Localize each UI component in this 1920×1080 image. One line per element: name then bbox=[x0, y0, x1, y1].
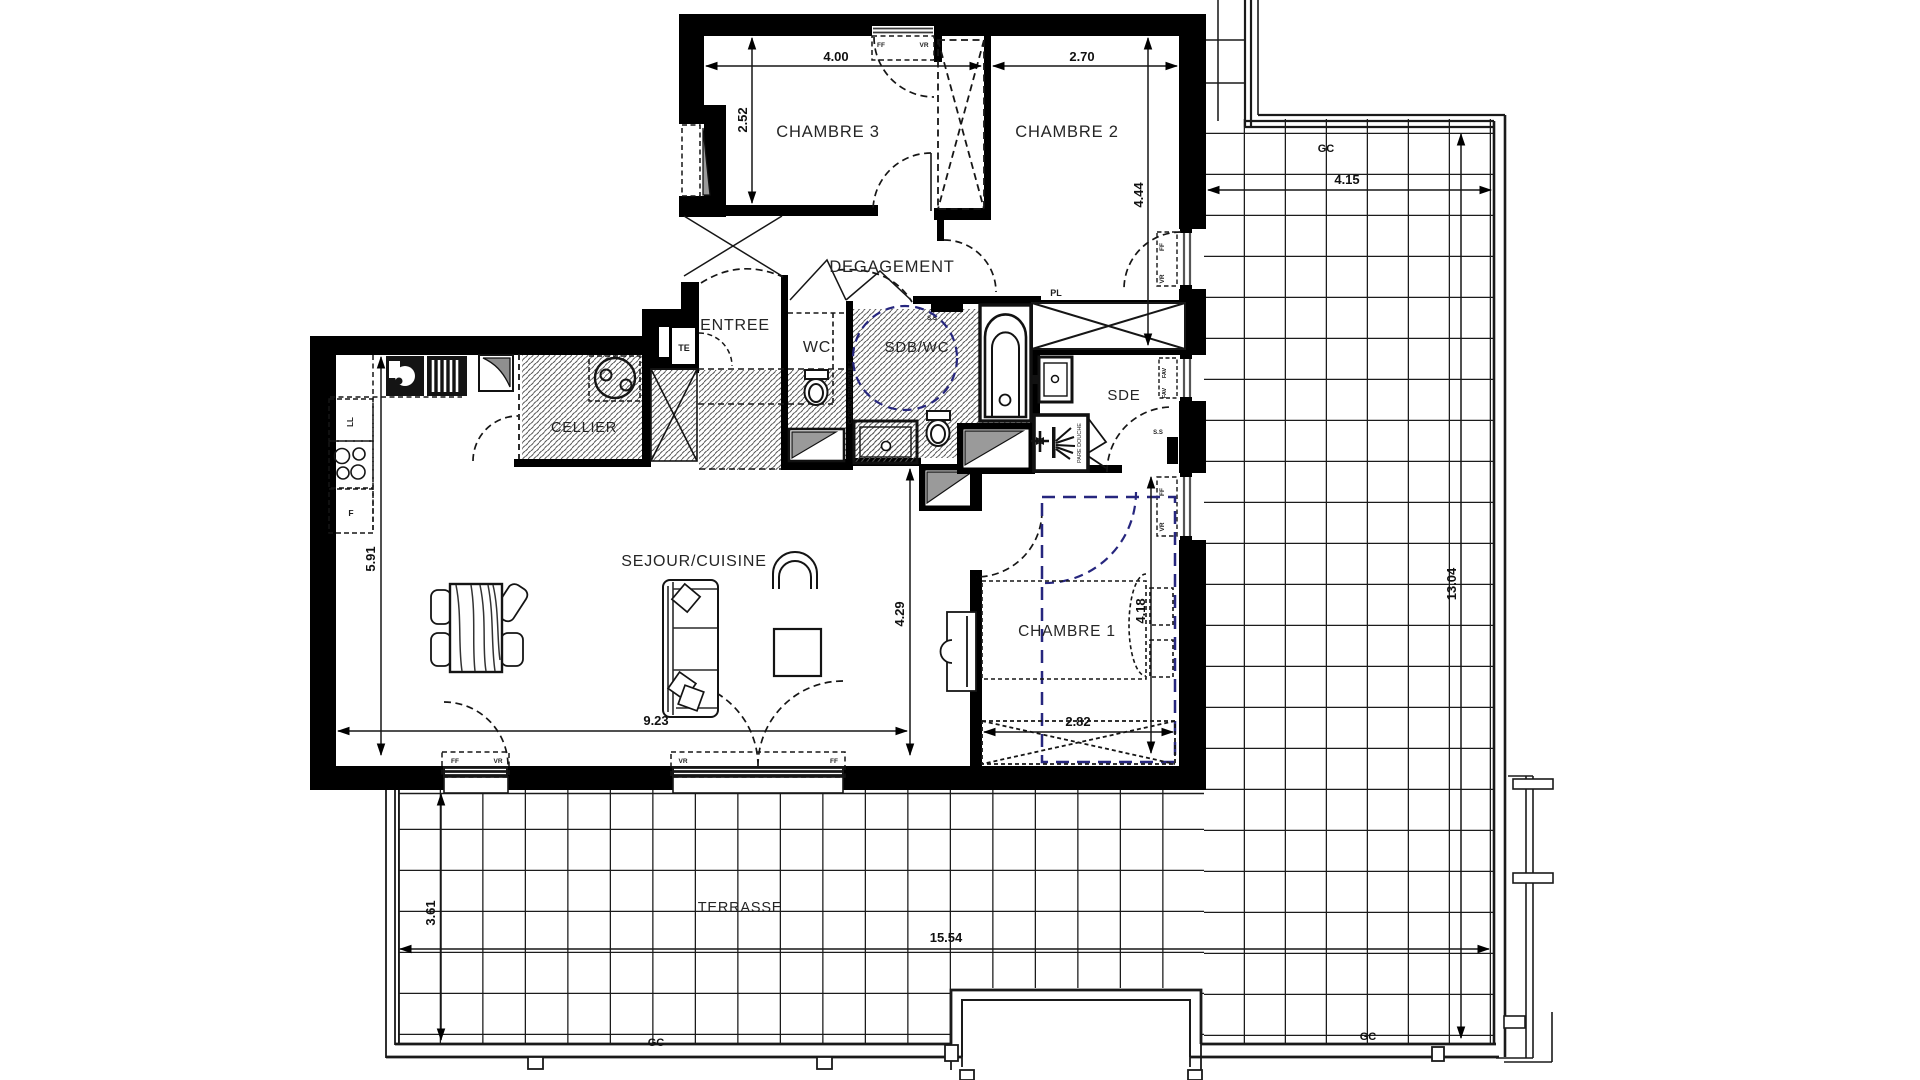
svg-text:FAV: FAV bbox=[1162, 368, 1168, 379]
svg-text:4.15: 4.15 bbox=[1334, 172, 1359, 187]
svg-text:GC: GC bbox=[1360, 1031, 1377, 1043]
svg-text:FF: FF bbox=[877, 42, 885, 49]
svg-text:SEJOUR/CUISINE: SEJOUR/CUISINE bbox=[621, 553, 766, 570]
svg-text:15.54: 15.54 bbox=[930, 930, 963, 945]
svg-text:4.18: 4.18 bbox=[1133, 598, 1148, 623]
svg-text:13.04: 13.04 bbox=[1444, 567, 1459, 600]
svg-text:CHAMBRE 1: CHAMBRE 1 bbox=[1018, 623, 1116, 640]
svg-text:FF: FF bbox=[451, 758, 459, 765]
svg-text:DEGAGEMENT: DEGAGEMENT bbox=[829, 258, 954, 276]
svg-text:FAV: FAV bbox=[1162, 388, 1168, 399]
svg-text:PL: PL bbox=[1050, 288, 1062, 298]
svg-text:SDE: SDE bbox=[1107, 387, 1140, 404]
svg-text:TE: TE bbox=[678, 343, 690, 353]
svg-text:PARE DOUCHE: PARE DOUCHE bbox=[1077, 423, 1083, 463]
svg-text:VR: VR bbox=[493, 758, 502, 765]
svg-text:S.S: S.S bbox=[1153, 430, 1163, 436]
svg-text:FF: FF bbox=[830, 758, 838, 765]
svg-text:FF: FF bbox=[1159, 243, 1166, 251]
svg-text:2.82: 2.82 bbox=[1065, 714, 1090, 729]
svg-text:4.29: 4.29 bbox=[892, 601, 907, 626]
svg-text:CELLIER: CELLIER bbox=[551, 420, 617, 436]
svg-text:VR: VR bbox=[919, 42, 928, 49]
svg-text:2.70: 2.70 bbox=[1069, 49, 1094, 64]
svg-text:GC: GC bbox=[648, 1037, 665, 1049]
svg-text:4.00: 4.00 bbox=[823, 49, 848, 64]
svg-text:5.91: 5.91 bbox=[363, 546, 378, 571]
svg-text:CHAMBRE 3: CHAMBRE 3 bbox=[776, 123, 879, 141]
svg-text:VR: VR bbox=[678, 758, 687, 765]
svg-text:9.23: 9.23 bbox=[643, 713, 668, 728]
svg-text:LL: LL bbox=[346, 417, 355, 427]
svg-text:3.61: 3.61 bbox=[423, 900, 438, 925]
svg-text:2.52: 2.52 bbox=[735, 107, 750, 132]
svg-text:WC: WC bbox=[803, 339, 831, 356]
svg-text:F: F bbox=[348, 508, 353, 518]
svg-text:GC: GC bbox=[1318, 143, 1335, 155]
svg-text:VR: VR bbox=[1159, 274, 1166, 283]
svg-text:VR: VR bbox=[1159, 522, 1166, 531]
svg-text:ENTREE: ENTREE bbox=[700, 317, 770, 334]
svg-text:TERRASSE: TERRASSE bbox=[698, 900, 783, 916]
svg-text:4.44: 4.44 bbox=[1131, 182, 1146, 208]
svg-text:CHAMBRE 2: CHAMBRE 2 bbox=[1015, 123, 1118, 141]
svg-text:FF: FF bbox=[1159, 488, 1166, 496]
svg-text:SDB/WC: SDB/WC bbox=[885, 339, 950, 356]
svg-text:CLOISON DEMONTABLE: CLOISON DEMONTABLE bbox=[848, 360, 854, 424]
